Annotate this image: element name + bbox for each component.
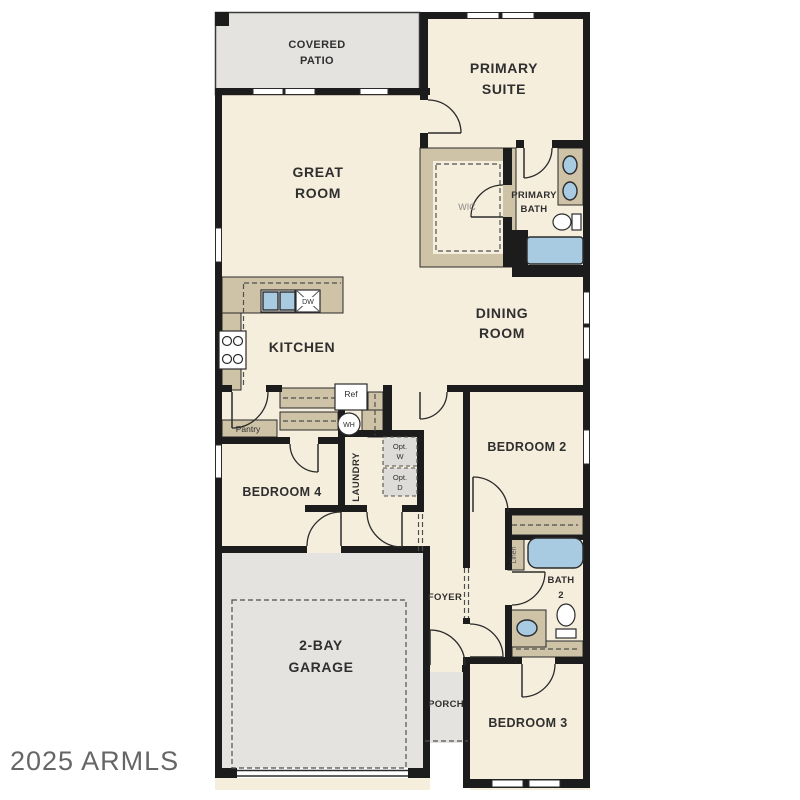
- bath2-tub: [528, 538, 583, 568]
- ref-label: Ref: [344, 389, 358, 399]
- bath2-label: BATH: [548, 575, 575, 586]
- window: [253, 89, 283, 95]
- floor-plan: COVERED PATIO PRIMARY SUITE GREAT ROOM W…: [0, 0, 800, 800]
- garage-label: 2-BAY: [299, 637, 343, 653]
- patio-post: [215, 12, 229, 26]
- svg-text:ROOM: ROOM: [295, 185, 341, 201]
- covered-patio-area: [216, 13, 420, 95]
- primary-sink-2: [563, 182, 577, 200]
- armls-watermark: 2025 ARMLS: [10, 746, 179, 777]
- window: [492, 780, 523, 787]
- covered-patio-label: COVERED: [288, 39, 345, 51]
- svg-text:ROOM: ROOM: [479, 325, 525, 341]
- svg-text:W: W: [396, 452, 404, 461]
- opt-dryer-label: Opt.: [393, 473, 407, 482]
- bath2-sink: [517, 620, 537, 636]
- range: [219, 331, 246, 369]
- wic-label: WIC: [458, 202, 476, 212]
- primary-tub: [527, 237, 583, 264]
- porch-label: PORCH: [428, 699, 464, 710]
- floor-fills: [215, 12, 590, 790]
- great-room-label: GREAT: [293, 164, 344, 180]
- laundry-label: LAUNDRY: [351, 452, 362, 502]
- window: [216, 445, 222, 478]
- window: [529, 780, 560, 787]
- bedroom2-label: BEDROOM 2: [487, 440, 566, 454]
- dining-room-label: DINING: [476, 305, 529, 321]
- bedroom3-label: BEDROOM 3: [488, 716, 567, 730]
- bath2-toilet: [557, 604, 575, 626]
- primary-suite-label: PRIMARY: [470, 60, 538, 76]
- dw-label: DW: [302, 299, 314, 306]
- window: [467, 13, 499, 19]
- window: [360, 89, 388, 95]
- primary-sink-1: [563, 156, 577, 174]
- svg-text:SUITE: SUITE: [482, 81, 526, 97]
- linen-label: Linen: [511, 546, 518, 563]
- svg-text:2: 2: [558, 590, 564, 601]
- wh-label: WH: [343, 422, 355, 429]
- foyer-label: FOYER: [428, 592, 462, 603]
- opt-washer-label: Opt.: [393, 442, 407, 451]
- window: [584, 430, 590, 464]
- primary-bath-label: PRIMARY: [511, 190, 557, 201]
- window: [584, 327, 590, 359]
- window: [584, 292, 590, 324]
- svg-text:PATIO: PATIO: [300, 55, 334, 67]
- pantry-label: Pantry: [236, 424, 261, 434]
- svg-text:BATH: BATH: [521, 204, 548, 215]
- svg-text:D: D: [397, 483, 403, 492]
- primary-toilet: [553, 214, 571, 230]
- floor-plan-page: COVERED PATIO PRIMARY SUITE GREAT ROOM W…: [0, 0, 800, 800]
- window: [502, 13, 534, 19]
- window: [285, 89, 315, 95]
- kitchen-label: KITCHEN: [269, 339, 335, 355]
- window: [216, 228, 222, 262]
- bedroom4-label: BEDROOM 4: [242, 485, 321, 499]
- svg-text:GARAGE: GARAGE: [288, 659, 353, 675]
